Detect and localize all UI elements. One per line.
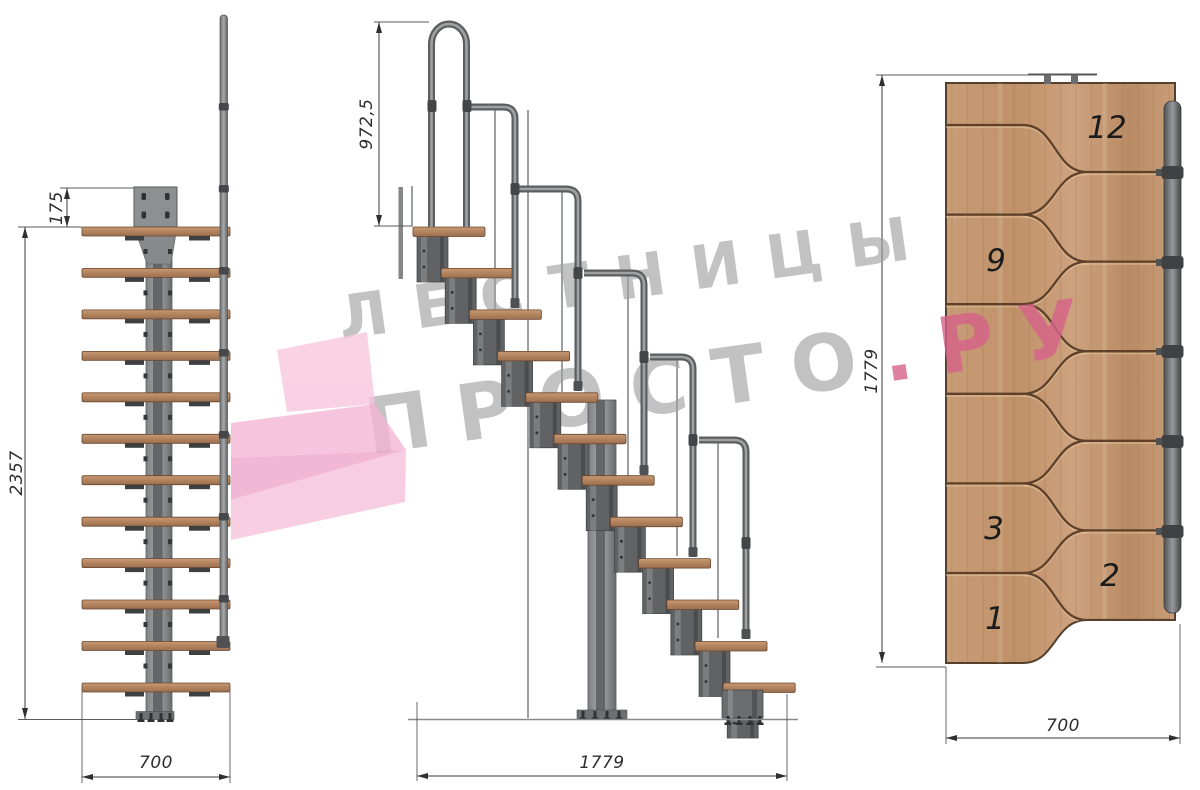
- side-column-stripe: [596, 400, 605, 718]
- front-width-label: 700: [139, 753, 173, 773]
- staircase-technical-drawing: 1779 700 12 9 3 2 1 ЛЕСТНИЦЫ ПРОСТО.РУ: [0, 0, 1200, 790]
- handrail-sleeve: [219, 267, 229, 275]
- rail-sleeve: [1162, 525, 1184, 538]
- handrail-sleeve: [219, 185, 229, 193]
- rail-foot: [689, 547, 698, 557]
- plate-offset-label: 175: [47, 191, 67, 225]
- plan-width-label: 700: [1046, 716, 1080, 736]
- drawing-sheet: 1779 700 12 9 3 2 1 ЛЕСТНИЦЫ ПРОСТО.РУ: [0, 0, 1200, 790]
- handrail-height-label: 972,5: [357, 98, 377, 149]
- total-height-label: 2357: [7, 450, 27, 495]
- brand-logo: [231, 332, 406, 540]
- front-view: 175 2357 700: [7, 15, 230, 783]
- rail-sleeve: [1162, 435, 1184, 448]
- plan-view: 1779 700 12 9 3 2 1: [862, 75, 1184, 745]
- rail-foot: [742, 629, 751, 639]
- side-run-label: 1779: [579, 753, 624, 773]
- rail-sleeve: [511, 183, 520, 195]
- dimension-handrail-height: 972,5: [357, 22, 429, 226]
- step-number-12: 12: [1087, 110, 1126, 146]
- wall-plate-edge: [399, 187, 404, 279]
- rail-foot: [640, 465, 649, 475]
- step-number-9: 9: [986, 243, 1006, 279]
- rail-sleeve: [640, 351, 649, 363]
- dimension-plate-offset: 175: [47, 188, 134, 227]
- rail-sleeve: [428, 100, 437, 112]
- handrail-sleeve: [219, 349, 229, 357]
- rail-sleeve: [574, 267, 583, 279]
- base-module-shade: [752, 690, 757, 718]
- base-module-highlight: [728, 690, 733, 718]
- handrail-post-bracket: [217, 636, 230, 648]
- rail-sleeve: [1162, 256, 1184, 269]
- handrail-sleeve: [219, 103, 229, 111]
- logo-facet-upper: [231, 404, 406, 458]
- handrail-sleeve: [219, 595, 229, 603]
- rail-sleeve: [1162, 345, 1184, 358]
- step-number-1: 1: [985, 601, 1005, 637]
- rail-sleeve: [689, 434, 698, 446]
- mounting-plate: [134, 187, 177, 227]
- handrail-sleeve: [219, 513, 229, 521]
- rail-sleeve: [463, 100, 472, 112]
- step-number-3: 3: [984, 511, 1004, 547]
- logo-facet-top: [277, 332, 375, 412]
- rail-sleeve: [1162, 166, 1184, 179]
- handrail-sleeve: [219, 431, 229, 439]
- step-number-2: 2: [1100, 558, 1120, 594]
- column-stripe: [153, 227, 163, 713]
- rail-sleeve: [742, 537, 751, 549]
- rail-foot: [574, 381, 583, 391]
- rail-foot: [511, 298, 520, 308]
